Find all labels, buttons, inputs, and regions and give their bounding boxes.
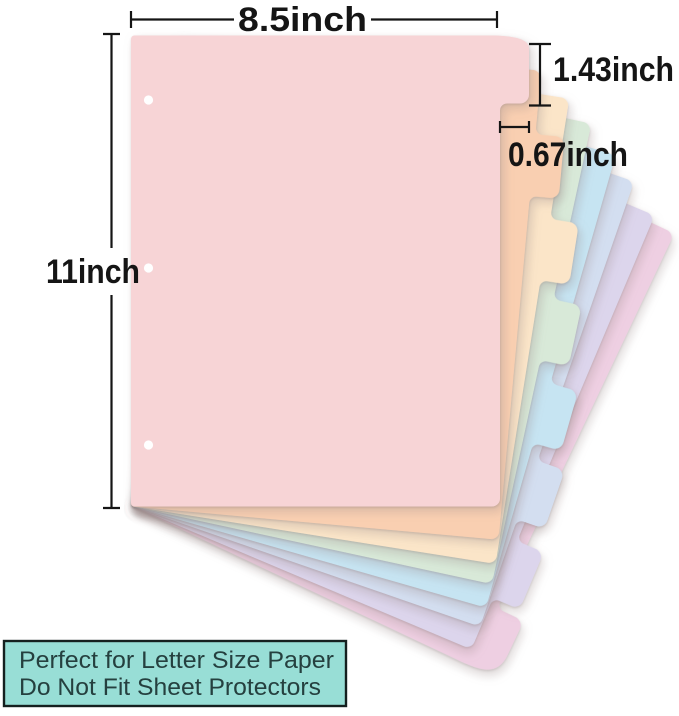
svg-text:Do Not Fit Sheet Protectors: Do Not Fit Sheet Protectors bbox=[19, 674, 321, 701]
svg-text:8.5inch: 8.5inch bbox=[238, 1, 367, 39]
svg-text:1.43inch: 1.43inch bbox=[553, 51, 674, 89]
svg-text:11inch: 11inch bbox=[46, 253, 140, 291]
svg-text:0.67inch: 0.67inch bbox=[508, 136, 628, 174]
svg-text:Perfect for Letter Size Paper: Perfect for Letter Size Paper bbox=[19, 647, 334, 674]
